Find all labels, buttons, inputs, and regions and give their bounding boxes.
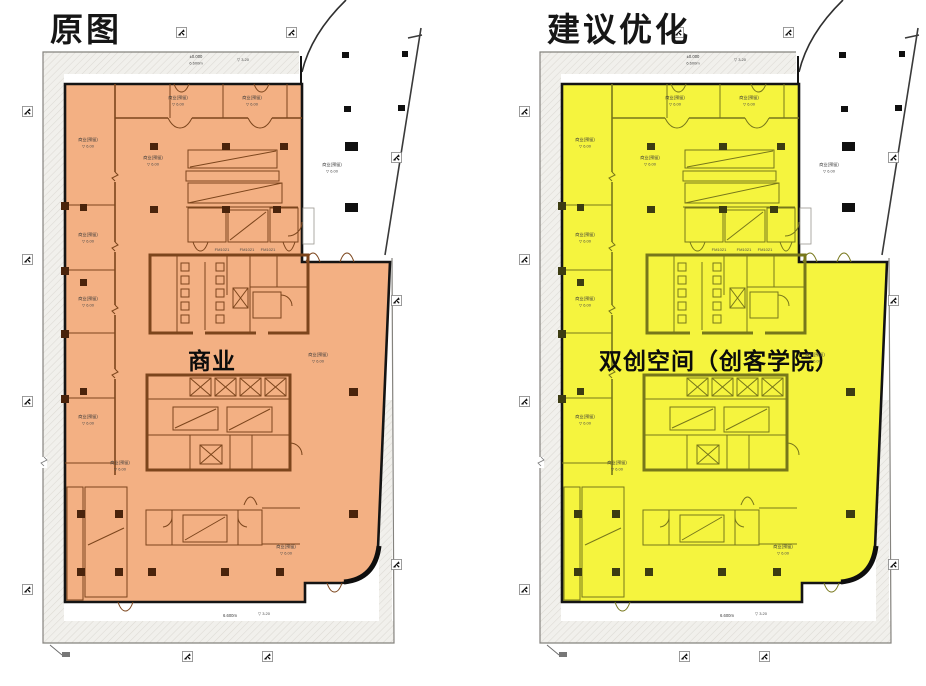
svg-text:商业(预留): 商业(预留) <box>78 295 98 302</box>
svg-text:▽ 6.00: ▽ 6.00 <box>579 421 592 426</box>
svg-text:商业(预留): 商业(预留) <box>78 413 98 420</box>
svg-text:商业(预留): 商业(预留) <box>276 543 296 550</box>
svg-text:▽ 6.00: ▽ 6.00 <box>246 102 259 107</box>
site-curved-edge <box>799 0 843 72</box>
svg-text:商业(预留): 商业(预留) <box>819 161 839 168</box>
svg-text:▽ 3.20: ▽ 3.20 <box>755 611 768 616</box>
view-marker-icon <box>391 559 401 569</box>
svg-text:商业(预留): 商业(预留) <box>575 136 595 143</box>
view-marker-icon <box>888 559 898 569</box>
svg-text:▽ 6.00: ▽ 6.00 <box>114 467 127 472</box>
view-marker-icon <box>519 106 529 116</box>
svg-text:▽ 6.00: ▽ 6.00 <box>172 102 185 107</box>
balcony-box <box>800 208 811 244</box>
svg-text:商业(预留): 商业(预留) <box>665 94 685 101</box>
svg-text:▽ 6.00: ▽ 6.00 <box>82 144 95 149</box>
panel-title: 原图 <box>50 3 122 51</box>
svg-text:▽ 3.20: ▽ 3.20 <box>258 611 271 616</box>
svg-text:商业(预留): 商业(预留) <box>640 154 660 161</box>
comparison-stage: 原图 <box>0 0 926 686</box>
view-marker-icon <box>888 152 898 162</box>
svg-text:FM1021: FM1021 <box>758 247 773 252</box>
svg-text:商业(预留): 商业(预留) <box>143 154 163 161</box>
svg-text:FM1021: FM1021 <box>712 247 727 252</box>
site-curved-edge <box>302 0 346 72</box>
view-marker-icon <box>262 651 272 661</box>
svg-text:商业(预留): 商业(预留) <box>575 231 595 238</box>
view-marker-icon <box>759 651 769 661</box>
site-corner-note <box>50 645 70 657</box>
svg-text:FM1021: FM1021 <box>261 247 276 252</box>
view-marker-icon <box>286 27 296 37</box>
svg-text:6.600m: 6.600m <box>686 61 700 66</box>
svg-text:▽ 6.00: ▽ 6.00 <box>611 467 624 472</box>
site-diagonal-edge <box>385 28 421 255</box>
svg-text:▽ 6.00: ▽ 6.00 <box>809 359 822 364</box>
svg-text:商业(预留): 商业(预留) <box>575 413 595 420</box>
floorplan-drawing: 商业 商业(预留) ▽ 6.00 商业(预留) ▽ 6.00 商业(预留) ▽ … <box>0 0 429 686</box>
view-marker-icon <box>22 106 32 116</box>
view-marker-icon <box>679 651 689 661</box>
svg-text:FM1021: FM1021 <box>240 247 255 252</box>
view-marker-icon <box>888 295 898 305</box>
view-marker-icon <box>783 27 793 37</box>
view-marker-icon <box>519 584 529 594</box>
svg-text:FM1021: FM1021 <box>737 247 752 252</box>
svg-text:▽ 6.00: ▽ 6.00 <box>147 162 160 167</box>
site-columns <box>342 51 408 212</box>
svg-text:▽ 6.00: ▽ 6.00 <box>777 551 790 556</box>
svg-text:▽ 6.00: ▽ 6.00 <box>326 169 339 174</box>
svg-text:▽ 6.00: ▽ 6.00 <box>823 169 836 174</box>
svg-text:商业(预留): 商业(预留) <box>242 94 262 101</box>
svg-text:▽ 6.00: ▽ 6.00 <box>579 239 592 244</box>
svg-text:▽ 6.00: ▽ 6.00 <box>579 144 592 149</box>
svg-text:▽ 6.00: ▽ 6.00 <box>82 239 95 244</box>
svg-text:商业(预留): 商业(预留) <box>607 459 627 466</box>
svg-text:6.600m: 6.600m <box>720 613 734 618</box>
svg-text:▽ 6.00: ▽ 6.00 <box>280 551 293 556</box>
svg-text:▽ 6.00: ▽ 6.00 <box>669 102 682 107</box>
view-marker-icon <box>22 584 32 594</box>
floorplan-panel-original: 原图 <box>0 0 429 686</box>
svg-text:▽ 6.00: ▽ 6.00 <box>82 303 95 308</box>
view-marker-icon <box>22 254 32 264</box>
site-columns <box>839 51 905 212</box>
site-diagonal-edge <box>882 28 918 255</box>
svg-text:商业(预留): 商业(预留) <box>168 94 188 101</box>
zone-label: 商业 <box>188 348 236 374</box>
svg-text:▽ 3.20: ▽ 3.20 <box>237 57 250 62</box>
svg-text:▽ 6.00: ▽ 6.00 <box>644 162 657 167</box>
view-marker-icon <box>182 651 192 661</box>
svg-text:▽ 6.00: ▽ 6.00 <box>312 359 325 364</box>
panel-title: 建议优化 <box>547 3 691 51</box>
floorplan-drawing: 双创空间（创客学院） 商业(预留) ▽ 6.00 商业(预留) ▽ 6.00 商… <box>497 0 926 686</box>
view-marker-icon <box>391 152 401 162</box>
svg-text:±0.000: ±0.000 <box>190 54 203 59</box>
svg-text:▽ 6.00: ▽ 6.00 <box>579 303 592 308</box>
svg-text:▽ 3.20: ▽ 3.20 <box>734 57 747 62</box>
view-marker-icon <box>519 396 529 406</box>
svg-text:商业(预留): 商业(预留) <box>773 543 793 550</box>
svg-text:商业(预留): 商业(预留) <box>575 295 595 302</box>
site-corner-note <box>547 645 567 657</box>
svg-text:▽ 6.00: ▽ 6.00 <box>82 421 95 426</box>
svg-text:▽ 6.00: ▽ 6.00 <box>743 102 756 107</box>
svg-text:商业(预留): 商业(预留) <box>322 161 342 168</box>
balcony-box <box>303 208 314 244</box>
floorplan-panel-proposed: 建议优化 <box>497 0 926 686</box>
svg-text:商业(预留): 商业(预留) <box>78 136 98 143</box>
svg-text:商业(预留): 商业(预留) <box>805 351 825 358</box>
view-marker-icon <box>391 295 401 305</box>
svg-text:6.600m: 6.600m <box>223 613 237 618</box>
view-marker-icon <box>519 254 529 264</box>
view-marker-icon <box>22 396 32 406</box>
svg-text:±0.000: ±0.000 <box>687 54 700 59</box>
svg-text:FM1021: FM1021 <box>215 247 230 252</box>
svg-text:商业(预留): 商业(预留) <box>110 459 130 466</box>
svg-text:6.600m: 6.600m <box>189 61 203 66</box>
svg-text:商业(预留): 商业(预留) <box>308 351 328 358</box>
view-marker-icon <box>176 27 186 37</box>
zone-label: 双创空间（创客学院） <box>599 348 839 374</box>
svg-text:商业(预留): 商业(预留) <box>739 94 759 101</box>
svg-text:商业(预留): 商业(预留) <box>78 231 98 238</box>
